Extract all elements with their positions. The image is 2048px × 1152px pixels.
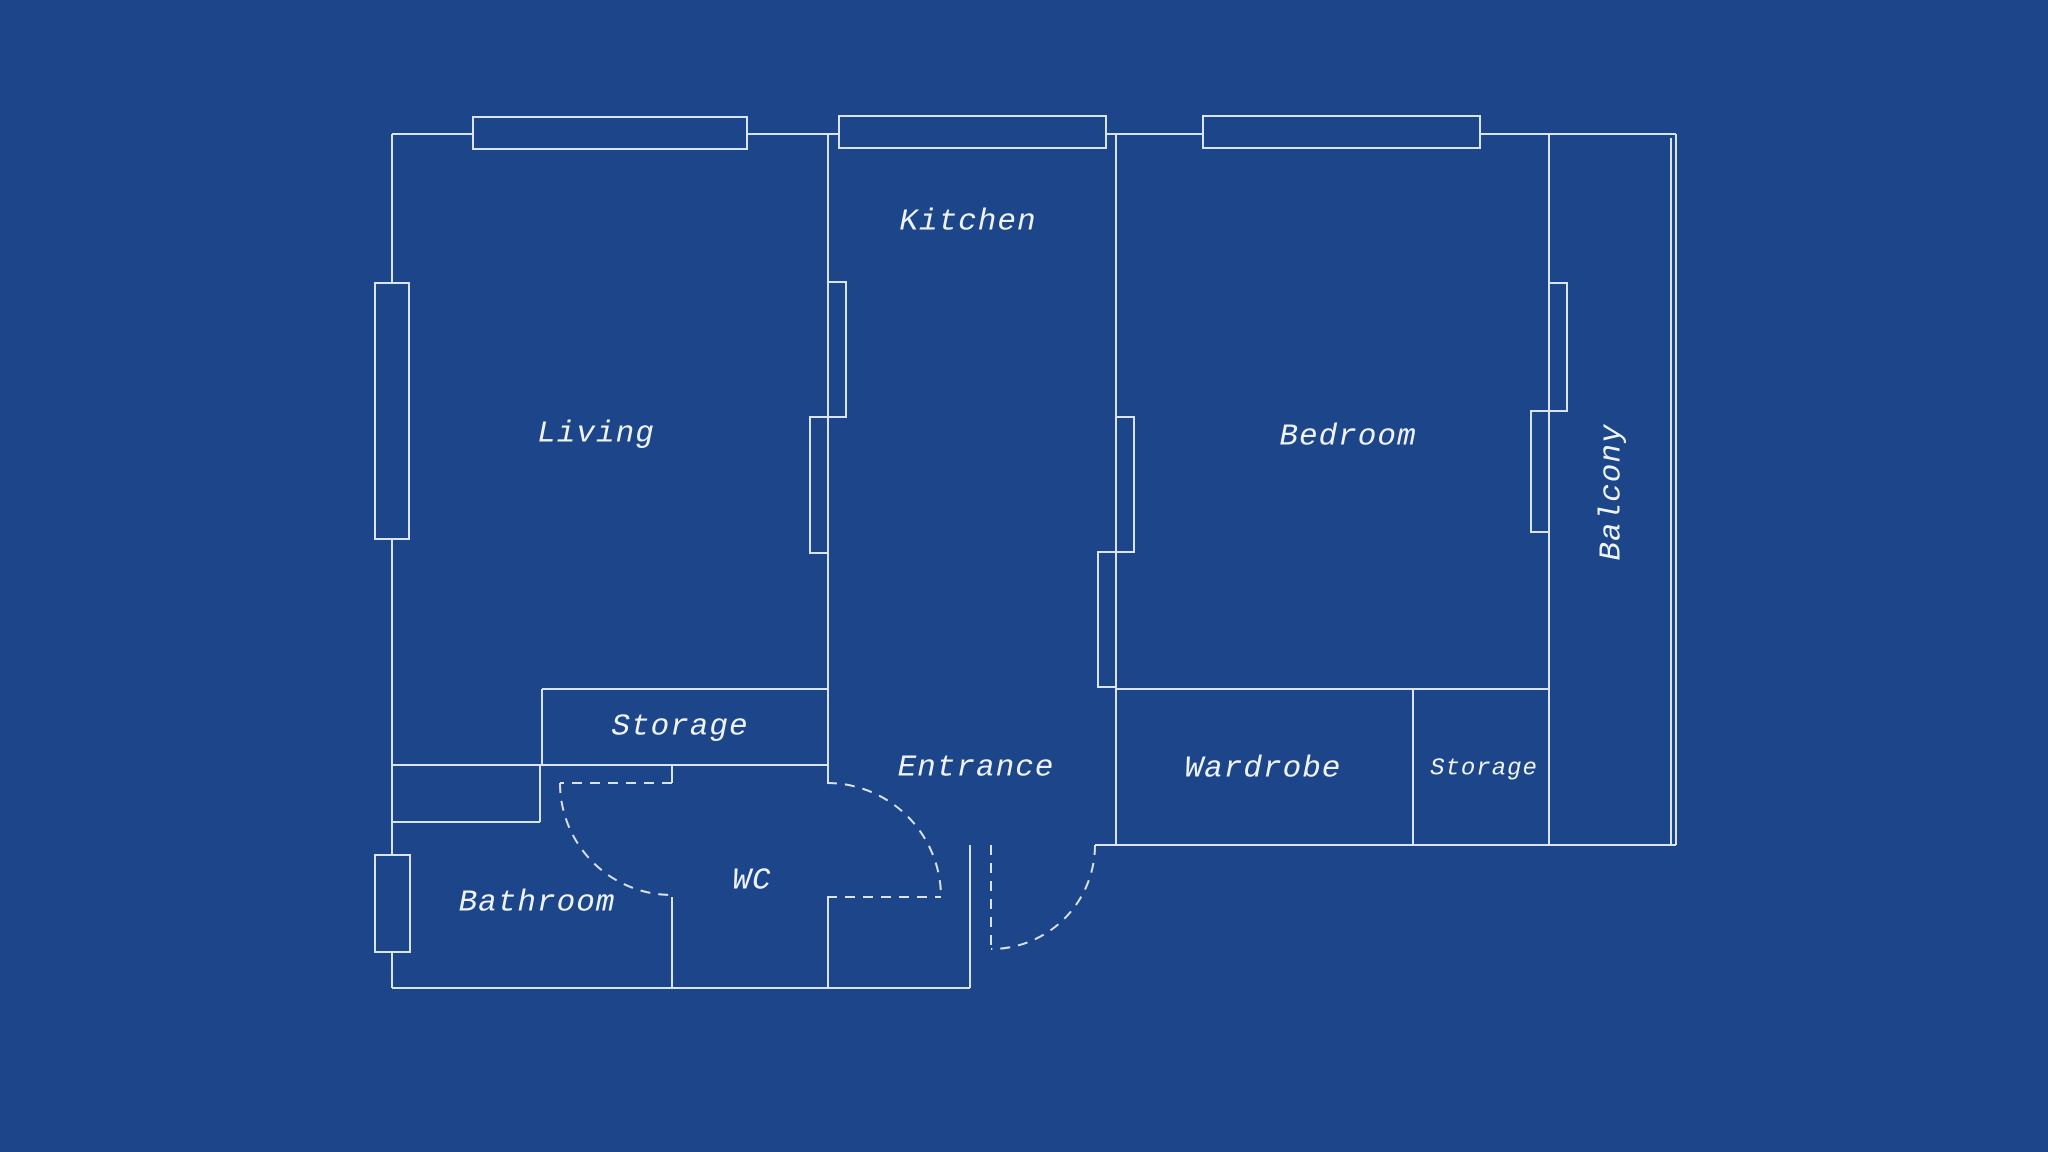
room-labels: Living Kitchen Bedroom Balcony Storage E… [459, 205, 1630, 921]
floor-plan: Living Kitchen Bedroom Balcony Storage E… [0, 0, 2048, 1152]
window-bedroom-balcony-upper [1549, 283, 1567, 411]
room-label-wardrobe: Wardrobe [1185, 752, 1342, 787]
window-bedroom-top [1203, 116, 1480, 148]
room-label-entrance: Entrance [898, 751, 1055, 786]
room-label-living: Living [537, 417, 655, 452]
door-entrance-arc [991, 845, 1095, 949]
room-label-bedroom: Bedroom [1279, 420, 1416, 455]
window-living-kitchen-upper [828, 282, 846, 417]
window-kitchen-bedroom-lower [1098, 552, 1116, 687]
room-label-balcony: Balcony [1595, 423, 1630, 561]
door-bathroom-arc [560, 783, 672, 895]
window-living-kitchen-lower [810, 417, 828, 553]
room-label-kitchen: Kitchen [899, 205, 1036, 240]
window-kitchen-top [839, 116, 1106, 148]
window-bedroom-balcony-lower [1531, 411, 1549, 532]
window-bathroom-left [375, 855, 410, 952]
window-living-left [375, 283, 409, 539]
window-living-top [473, 117, 747, 149]
room-label-storage-hall: Storage [611, 710, 748, 745]
door-wc-arc [827, 783, 941, 897]
walls [392, 134, 1676, 988]
room-label-wc: WC [732, 864, 771, 899]
room-label-storage-bedroom: Storage [1430, 756, 1538, 783]
window-kitchen-bedroom-upper [1116, 417, 1134, 552]
windows [375, 116, 1567, 952]
room-label-bathroom: Bathroom [459, 886, 616, 921]
blueprint-canvas: Living Kitchen Bedroom Balcony Storage E… [0, 0, 2048, 1152]
